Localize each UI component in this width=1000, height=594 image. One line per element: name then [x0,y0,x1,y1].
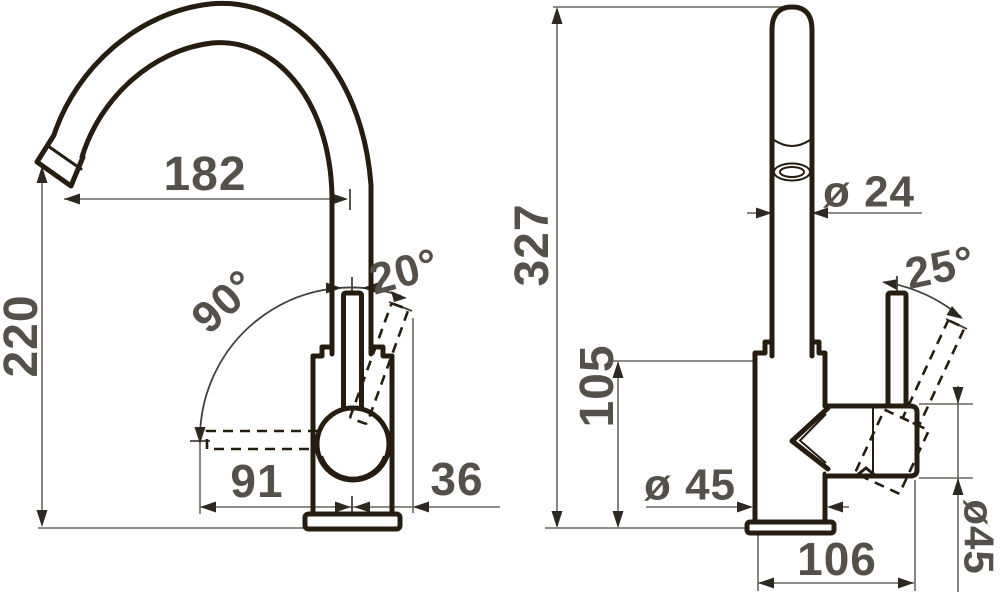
dim-label-106: 106 [797,533,877,585]
base-flange-side [747,522,834,533]
dim-label-o45-handle: ø45 [955,499,1000,574]
angle-label-20: 20° [364,239,444,304]
front-view: 182 220 90° 20° 91 36 [0,3,500,529]
drawing-canvas: 182 220 90° 20° 91 36 [0,0,1000,594]
side-view-dimension-lines [545,7,973,592]
side-view: 327 ø 24 25° 105 ø 45 ø45 106 [506,7,1000,592]
faucet-dimension-drawing: 182 220 90° 20° 91 36 [0,0,1000,594]
dim-label-105: 105 [571,344,624,427]
lever-side [888,293,906,406]
dim-label-91: 91 [230,455,283,507]
base-flange-front [305,514,400,529]
dim-label-36: 36 [430,453,483,505]
dim-label-o24: ø 24 [823,167,915,216]
aerator-ring-line [48,146,81,169]
side-faucet-outline [747,7,917,533]
dim-label-o45-body: ø 45 [644,460,736,509]
valve-joint-circle [317,408,389,480]
spout-rotated-projection [207,431,318,449]
dim-label-182: 182 [163,148,246,201]
lever-front [344,293,362,409]
dim-label-220: 220 [0,294,48,377]
angle-label-90: 90° [182,260,266,343]
side-body-left [755,342,772,522]
body-shoulder-left [313,347,332,356]
dim-label-327: 327 [506,203,559,286]
angle-label-25: 25° [901,237,979,299]
